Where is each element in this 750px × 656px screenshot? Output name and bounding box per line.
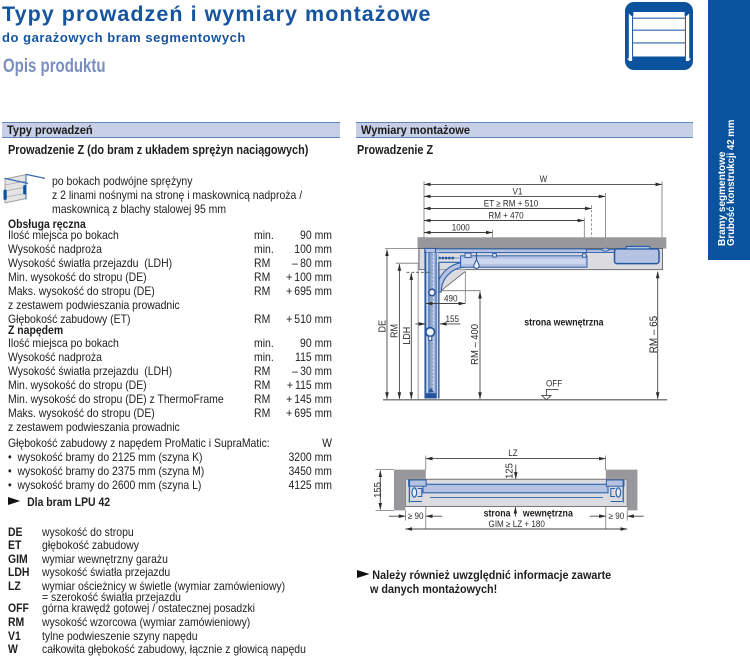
svg-text:RM – 400: RM – 400	[470, 324, 482, 365]
svg-text:LZ: LZ	[508, 448, 517, 459]
svg-text:ET ≥ RM + 510: ET ≥ RM + 510	[484, 198, 539, 209]
svg-text:RM: RM	[389, 324, 401, 338]
svg-text:155: 155	[445, 313, 459, 324]
svg-text:W: W	[540, 174, 549, 185]
svg-text:RM – 65: RM – 65	[649, 316, 661, 354]
svg-text:OFF: OFF	[546, 378, 562, 389]
svg-text:RM + 470: RM + 470	[488, 210, 524, 221]
svg-text:155: 155	[373, 482, 385, 498]
svg-text:125: 125	[504, 463, 516, 479]
svg-text:≥ 90: ≥ 90	[609, 510, 625, 521]
svg-text:1000: 1000	[452, 222, 470, 233]
svg-text:≥ 90: ≥ 90	[408, 510, 424, 521]
svg-text:strona wewnętrzna: strona wewnętrzna	[524, 317, 604, 329]
svg-text:490: 490	[444, 293, 458, 304]
svg-text:DE: DE	[377, 320, 389, 332]
svg-text:LDH: LDH	[401, 327, 413, 345]
svg-text:V1: V1	[512, 186, 522, 197]
svg-text:GIM ≥ LZ + 180: GIM ≥ LZ + 180	[489, 519, 546, 530]
